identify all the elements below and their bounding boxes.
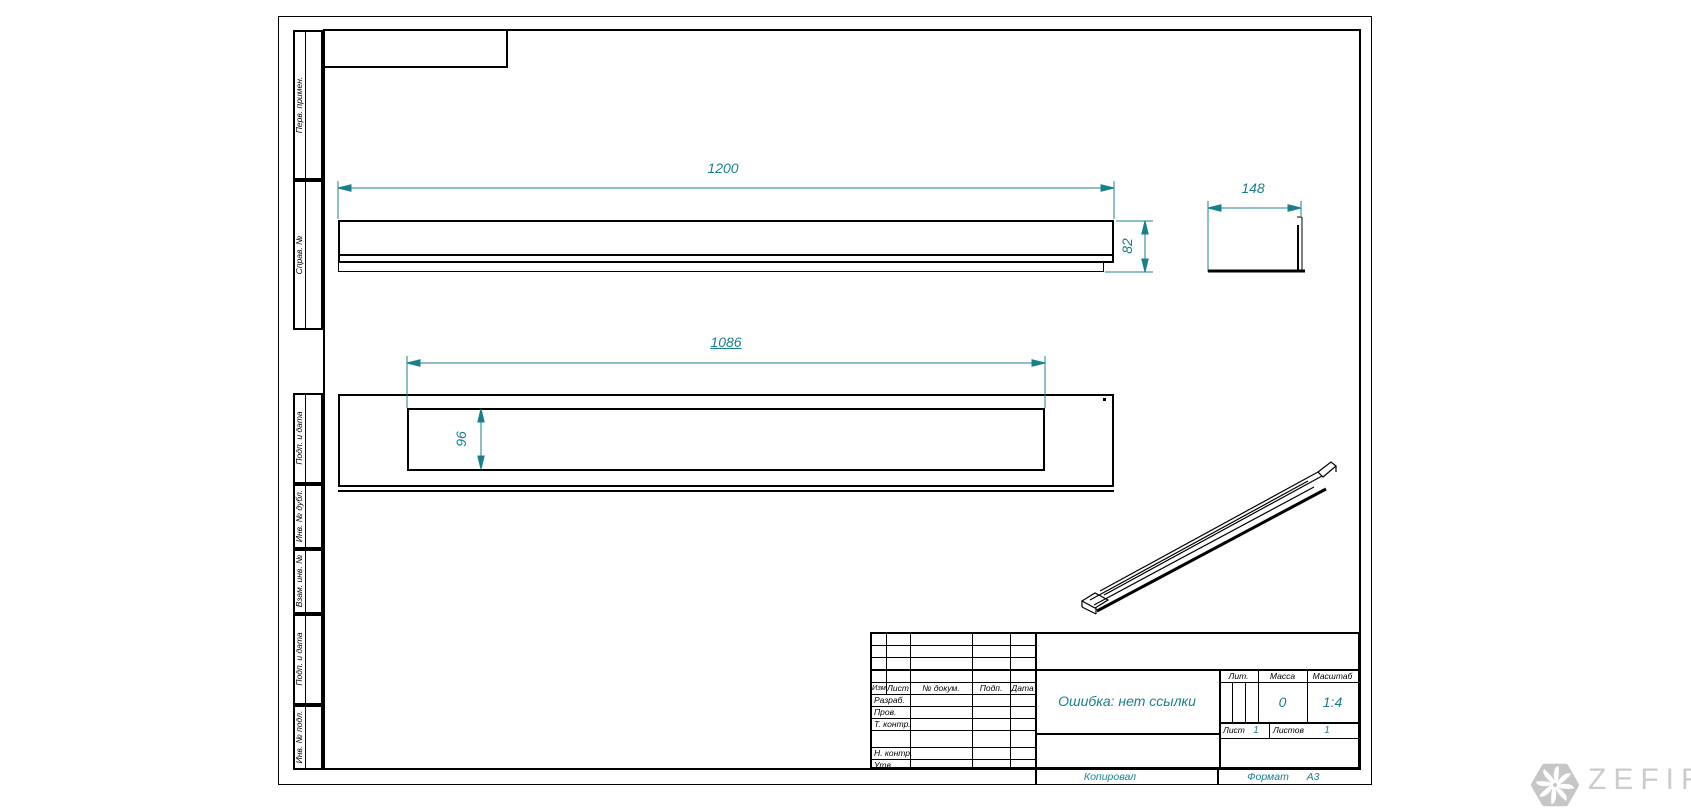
top-view-detail-dot bbox=[1103, 398, 1106, 401]
header-list: Лист bbox=[886, 682, 910, 694]
title-block-line bbox=[1035, 733, 1219, 735]
header-podp: Подп. bbox=[972, 682, 1010, 694]
dim-label-148: 148 bbox=[1228, 180, 1278, 196]
format-value: А3 bbox=[1296, 771, 1330, 783]
front-view-body bbox=[338, 220, 1114, 263]
margin-label-podp-data-1: Подп. и дата bbox=[294, 411, 304, 464]
row-utv: Утв. bbox=[874, 759, 893, 771]
watermark: ZEFIRE bbox=[1520, 755, 1691, 810]
scale-label: Масштаб bbox=[1307, 670, 1358, 682]
header-izm: Изм. bbox=[872, 682, 886, 694]
copied-label: Копировал bbox=[1020, 771, 1200, 783]
margin-box-divider bbox=[305, 486, 306, 547]
margin-label-perv-primen: Перв. примен. bbox=[294, 77, 304, 134]
top-view-bottom-edge bbox=[338, 490, 1114, 492]
header-no-dokum: № докум. bbox=[910, 682, 972, 694]
mass-label: Масса bbox=[1258, 670, 1307, 682]
margin-box-divider bbox=[305, 616, 306, 703]
sheets-value: 1 bbox=[1317, 723, 1337, 738]
margin-box-divider bbox=[305, 32, 306, 178]
title-block-line bbox=[1232, 682, 1233, 723]
row-t-kontr: Т. контр. bbox=[874, 718, 911, 730]
title-block-line bbox=[1269, 722, 1270, 739]
title-block: Изм. Лист № докум. Подп. Дата Разраб. Пр… bbox=[870, 632, 1360, 769]
row-prov: Пров. bbox=[874, 706, 896, 718]
title-block-line bbox=[972, 634, 973, 767]
watermark-brand-text: ZEFIRE bbox=[1588, 763, 1691, 797]
margin-box-divider bbox=[305, 707, 306, 768]
margin-label-inv-dubl: Инв. № дубл. bbox=[294, 490, 304, 542]
sheet-value: 1 bbox=[1247, 723, 1265, 738]
row-n-kontr: Н. контр. bbox=[874, 747, 912, 759]
margin-box-divider bbox=[305, 551, 306, 612]
margin-label-sprav-no: Справ. № bbox=[294, 236, 304, 275]
margin-box-divider bbox=[305, 395, 306, 482]
title-block-line bbox=[1010, 634, 1011, 767]
margin-label-vzam-inv: Взам. инв. № bbox=[294, 555, 304, 608]
front-view-lip bbox=[338, 263, 1104, 272]
margin-label-podp-data-2: Подп. и дата bbox=[294, 632, 304, 685]
front-view-inner-edge bbox=[340, 254, 1112, 256]
zefire-logo-icon bbox=[1530, 759, 1580, 810]
dim-label-82: 82 bbox=[1119, 221, 1143, 271]
top-view-cutout bbox=[407, 408, 1045, 471]
row-razrab: Разраб. bbox=[874, 694, 905, 706]
format-label: Формат bbox=[1238, 771, 1298, 783]
header-data: Дата bbox=[1010, 682, 1035, 694]
title-block-line bbox=[1219, 669, 1221, 767]
lit-label: Лит. bbox=[1219, 670, 1258, 682]
dim-label-1086: 1086 bbox=[671, 334, 781, 350]
sheets-label: Листов bbox=[1273, 724, 1304, 736]
title-block-line bbox=[1245, 682, 1246, 723]
sheet-label: Лист bbox=[1223, 724, 1245, 736]
footer-divider-line bbox=[1217, 770, 1219, 784]
margin-box-divider bbox=[305, 182, 306, 328]
dim-label-1200: 1200 bbox=[668, 160, 778, 176]
scale-value: 1:4 bbox=[1307, 682, 1358, 722]
mass-value: 0 bbox=[1258, 682, 1307, 722]
top-designation-box bbox=[323, 29, 508, 68]
drawing-sheet: Перв. примен. Справ. № Подп. и дата Инв.… bbox=[0, 0, 1691, 810]
dim-label-96: 96 bbox=[453, 414, 477, 464]
title-block-line bbox=[1219, 738, 1358, 739]
doc-title: Ошибка: нет ссылки bbox=[1035, 669, 1219, 733]
margin-label-inv-podl: Инв. № подл. bbox=[294, 711, 304, 764]
